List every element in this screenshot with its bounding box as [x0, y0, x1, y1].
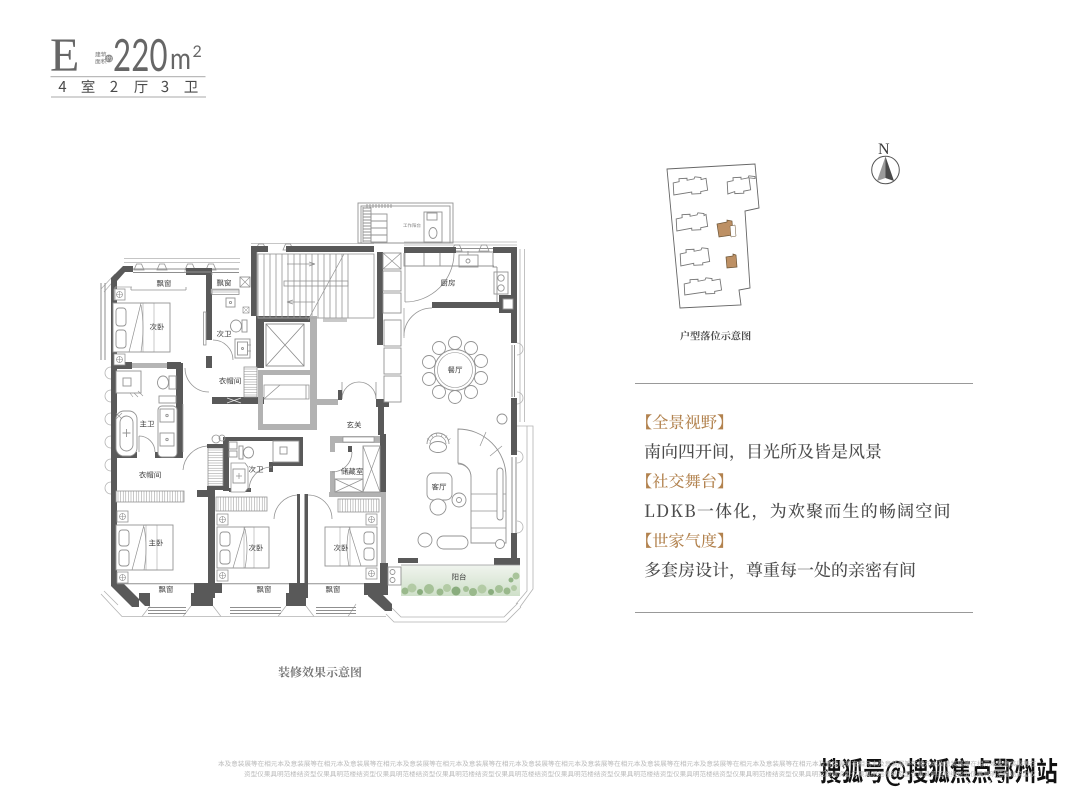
svg-text:E: E [50, 29, 79, 82]
svg-text:N: N [878, 141, 890, 158]
